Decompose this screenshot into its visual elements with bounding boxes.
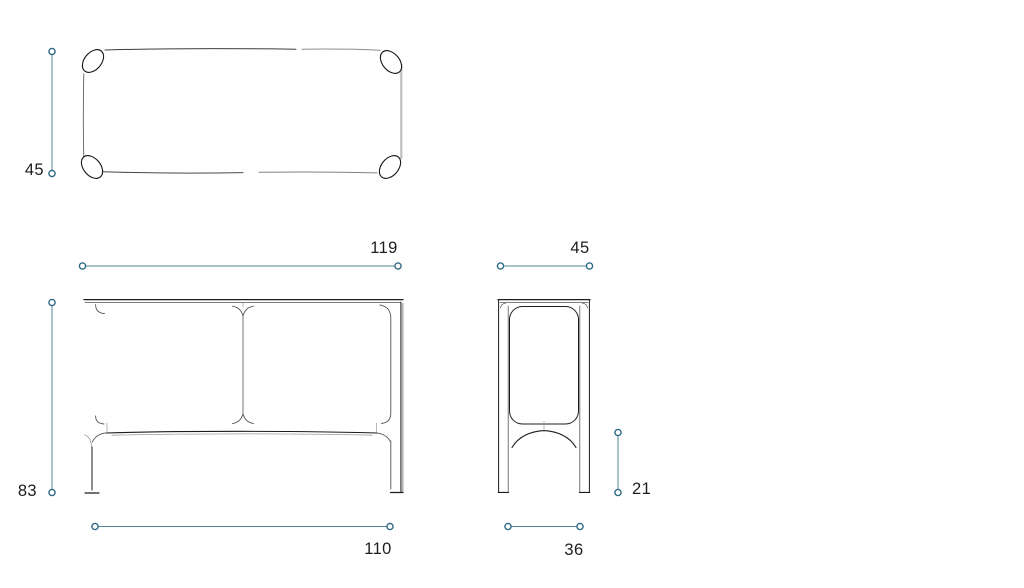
dimension-label-top-depth: 45 xyxy=(25,161,44,179)
dimension-top-depth: 45 xyxy=(25,48,55,179)
side-arched-stretcher xyxy=(512,431,576,448)
front-stretcher-right-junction xyxy=(376,433,391,442)
front-right-leg-inner xyxy=(380,305,391,424)
dimension-side-stretcher-height: 21 xyxy=(615,429,651,498)
dimension-endpoint-marker xyxy=(615,429,621,435)
dimension-label-front-height: 83 xyxy=(18,482,37,500)
dimension-label-side-stretcher-height: 21 xyxy=(632,480,651,498)
dimension-endpoint-marker xyxy=(79,263,85,269)
dimension-endpoint-marker xyxy=(49,170,55,176)
top-view-drawing xyxy=(77,46,406,183)
front-view-drawing xyxy=(84,300,403,493)
tabletop-bottom-edge-2 xyxy=(259,172,377,173)
dimension-label-front-width: 119 xyxy=(370,239,398,257)
tabletop-top-edge-2 xyxy=(302,49,380,50)
side-frame-corner-curls xyxy=(501,303,588,308)
dimension-label-front-foot-span: 110 xyxy=(364,540,392,558)
dimension-endpoint-marker xyxy=(387,523,393,529)
front-left-corner-bottom xyxy=(96,416,104,424)
dimension-label-side-depth: 45 xyxy=(570,239,589,257)
dimension-side-foot-span: 36 xyxy=(505,523,584,559)
side-view-drawing xyxy=(498,300,590,493)
front-center-flare-top xyxy=(233,306,254,316)
front-stretcher-bottom xyxy=(112,434,372,435)
front-stretcher-left-junction xyxy=(92,433,106,442)
front-center-flare-bottom xyxy=(233,414,254,424)
dimension-endpoint-marker xyxy=(92,523,98,529)
dimension-endpoint-marker xyxy=(505,523,511,529)
tabletop-top-edge xyxy=(105,49,296,50)
dimension-endpoint-marker xyxy=(615,489,621,495)
dimension-side-depth: 45 xyxy=(497,239,592,269)
side-inner-panel xyxy=(510,307,579,425)
front-left-corner-top xyxy=(96,305,105,314)
dimension-endpoint-marker xyxy=(395,263,401,269)
dimension-front-foot-span: 110 xyxy=(92,523,393,558)
front-left-leg-flare xyxy=(85,435,92,447)
dimension-endpoint-marker xyxy=(577,523,583,529)
technical-drawing-canvas: 45 119 83 110 45 21 36 xyxy=(0,0,1024,588)
dimension-front-width: 119 xyxy=(79,239,401,269)
dimension-front-height: 83 xyxy=(18,299,55,500)
front-stretcher-top xyxy=(106,431,377,433)
dimension-endpoint-marker xyxy=(49,299,55,305)
technical-drawing-page: 45 119 83 110 45 21 36 xyxy=(0,0,1024,588)
dimension-endpoint-marker xyxy=(49,48,55,54)
dimension-endpoint-marker xyxy=(49,489,55,495)
dimension-endpoint-marker xyxy=(497,263,503,269)
tabletop-bottom-edge xyxy=(103,172,243,173)
dimension-endpoint-marker xyxy=(586,263,592,269)
leg-top-left xyxy=(78,46,108,77)
dimension-label-side-foot-span: 36 xyxy=(564,541,583,559)
leg-bottom-left xyxy=(77,152,107,183)
